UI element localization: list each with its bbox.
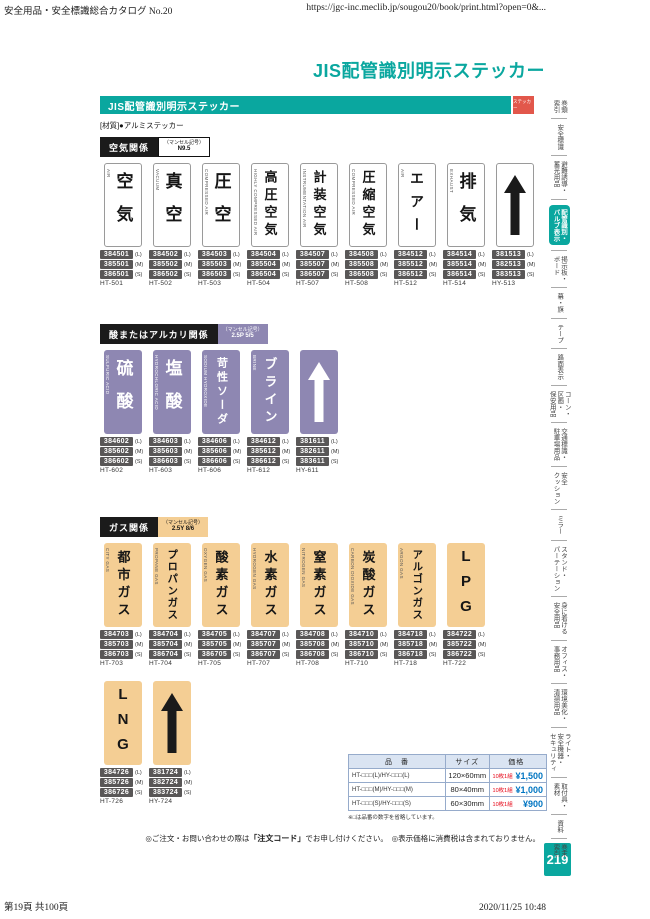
product-codes: 381611(L)382611(M)383611(S)HY-611 [296, 437, 342, 474]
pipe-sticker: HYDROGEN GAS水素ガス [251, 543, 289, 627]
sticker-main-label: 圧空 [213, 172, 230, 238]
size-label: (S) [135, 790, 142, 796]
munsell-value: 2.5Y 8/6 [163, 526, 203, 534]
product-column: AIR空気384501(L)385501(M)386501(S)HT-501 [100, 163, 146, 287]
model-number: HT-504 [247, 280, 293, 287]
size-label: (M) [184, 780, 192, 786]
sticker-english-label: SULFURIC ACID [105, 355, 110, 394]
size-label: (M) [429, 262, 437, 268]
size-cell: 120×60mm [446, 769, 490, 782]
order-code-badge: 386503 [198, 270, 231, 279]
product-codes: 384722(L)385722(M)386722(S)HT-722 [443, 630, 489, 667]
sticker-main-label: 真空 [164, 172, 181, 238]
model-number: HT-512 [394, 280, 440, 287]
size-label: (L) [233, 252, 240, 258]
size-label: (S) [380, 272, 387, 278]
order-code-line: 386502(S) [149, 270, 195, 279]
pipe-sticker: OXYGEN GAS酸素ガス [202, 543, 240, 627]
order-code-line: 386501(S) [100, 270, 146, 279]
product-column: AIRエアー384512(L)385512(M)386512(S)HT-512 [394, 163, 440, 287]
print-footer-datetime: 2020/11/25 10:48 [479, 903, 546, 913]
size-label: (M) [135, 449, 143, 455]
size-label: (L) [478, 252, 485, 258]
price-table-row: HT-□□□(M)/HY-□□□(M)80×40mm10枚1組¥1,000 [349, 783, 546, 797]
model-number: HT-703 [100, 660, 146, 667]
sticker-english-label: HYDROGEN GAS [252, 548, 257, 590]
order-code-badge: 385707 [247, 640, 280, 649]
sticker-main-label: 圧縮空気 [362, 170, 375, 240]
pipe-sticker: AIR空気 [104, 163, 142, 247]
order-code-line: 386512(S) [394, 270, 440, 279]
product-codes: 384507(L)385507(M)386507(S)HT-507 [296, 250, 342, 287]
sidebar-tab: 安全 クッション [552, 472, 567, 505]
product-column: NITROGEN GAS窒素ガス384708(L)385708(M)386708… [296, 543, 342, 667]
sticker-main-label: 窒素ガス [313, 550, 326, 620]
sticker-category-tag: ステッカー [513, 96, 534, 114]
tab-divider [551, 727, 567, 728]
size-label: (M) [233, 642, 241, 648]
order-code-badge: 386718 [394, 650, 427, 659]
order-code-badge: 384508 [345, 250, 378, 259]
sidebar-tab: ミラー [555, 515, 563, 535]
order-code-badge: 384707 [247, 630, 280, 639]
product-column: INSTRUMENTATION AIR計装空気384507(L)385507(M… [296, 163, 342, 287]
size-label: (S) [380, 652, 387, 658]
order-code-line: 386704(S) [149, 650, 195, 659]
order-code-badge: 382611 [296, 447, 329, 456]
order-code-badge: 385704 [149, 640, 182, 649]
sticker-main-label: 都市ガス [117, 550, 130, 620]
arrow-sticker [496, 163, 534, 247]
sticker-english-label: AIR [106, 169, 111, 178]
pack-unit: 10枚1組 [493, 772, 513, 780]
sticker-english-label: NITROGEN GAS [301, 548, 306, 587]
size-label: (S) [282, 459, 289, 465]
order-code-line: 384602(L) [100, 437, 146, 446]
tab-divider [551, 838, 567, 839]
size-label: (M) [527, 262, 535, 268]
order-code-badge: 385705 [198, 640, 231, 649]
model-number: HT-503 [198, 280, 244, 287]
sidebar-tab: 避難誘導・ 蓄光用品 [552, 161, 567, 194]
order-code-line: 384718(L) [394, 630, 440, 639]
sticker-main-label: 酸素ガス [215, 550, 228, 620]
product-codes: 384512(L)385512(M)386512(S)HT-512 [394, 250, 440, 287]
order-code-badge: 384704 [149, 630, 182, 639]
sticker-main-label: アルゴンガス [412, 549, 423, 621]
size-label: (L) [135, 770, 142, 776]
size-label: (L) [184, 439, 191, 445]
size-label: (M) [282, 262, 290, 268]
sticker-main-label: 硫酸 [115, 359, 132, 425]
order-code-badge: 381611 [296, 437, 329, 446]
product-column: LPG384722(L)385722(M)386722(S)HT-722 [443, 543, 489, 667]
product-column: HYDROGEN GAS水素ガス384707(L)385707(M)386707… [247, 543, 293, 667]
price-table-header-cell: 価格 [490, 755, 546, 768]
section-header: ガス関係（マンセル記号）2.5Y 8/6 [100, 517, 545, 537]
sticker-main-label: 苛性ソーダ [216, 357, 227, 427]
order-code-line: 381611(L) [296, 437, 342, 446]
order-code-line: 384502(L) [149, 250, 195, 259]
order-code-line: 385707(M) [247, 640, 293, 649]
order-code-badge: 384507 [296, 250, 329, 259]
tab-divider [551, 318, 567, 319]
product-codes: 384612(L)385612(M)386612(S)HT-612 [247, 437, 293, 474]
price-value: ¥900 [523, 799, 543, 809]
size-label: (L) [233, 439, 240, 445]
model-number: HY-611 [296, 467, 342, 474]
order-code-line: 383611(S) [296, 457, 342, 466]
order-code-line: 381513(L) [492, 250, 538, 259]
size-label: (S) [135, 652, 142, 658]
sticker-main-label: 塩酸 [164, 359, 181, 425]
price-table: 品 番サイズ価格HT-□□□(L)/HY-□□□(L)120×60mm10枚1組… [348, 754, 547, 821]
sticker-main-label: 空気 [115, 172, 132, 238]
size-label: (S) [233, 459, 240, 465]
price-table-header-row: 品 番サイズ価格 [349, 755, 546, 769]
sidebar-tab: 巻末 索引 [552, 844, 567, 857]
order-code-badge: 384705 [198, 630, 231, 639]
product-column: PROPANE GASプロパンガス384704(L)385704(M)38670… [149, 543, 195, 667]
order-code-line: 385606(M) [198, 447, 244, 456]
size-label: (M) [184, 449, 192, 455]
order-code-line: 384503(L) [198, 250, 244, 259]
size-cell: 60×30mm [446, 797, 490, 810]
order-code-badge: 385602 [100, 447, 133, 456]
tab-divider [551, 540, 567, 541]
product-codes: 384502(L)385502(M)386502(S)HT-502 [149, 250, 195, 287]
size-label: (L) [527, 252, 534, 258]
order-code-badge: 384708 [296, 630, 329, 639]
product-codes: 384501(L)385501(M)386501(S)HT-501 [100, 250, 146, 287]
order-code-badge: 383724 [149, 788, 182, 797]
sticker-row: CITY GAS都市ガス384703(L)385703(M)386703(S)H… [100, 543, 545, 667]
order-code-badge: 385603 [149, 447, 182, 456]
order-code-line: 384603(L) [149, 437, 195, 446]
size-label: (L) [380, 632, 387, 638]
model-number: HT-514 [443, 280, 489, 287]
size-label: (L) [478, 632, 485, 638]
order-code-line: 384612(L) [247, 437, 293, 446]
sticker-english-label: SODIUM HYDROXIDE [203, 355, 208, 407]
product-column: HYDROCHLORIC ACID塩酸384603(L)385603(M)386… [149, 350, 195, 474]
product-codes: 384710(L)385710(M)386710(S)HT-710 [345, 630, 391, 667]
sticker-english-label: ARGON GAS [399, 548, 404, 579]
order-code-line: 385710(M) [345, 640, 391, 649]
order-code-line: 385501(M) [100, 260, 146, 269]
price-cell: 10枚1組¥900 [490, 797, 546, 810]
order-code-badge: 386704 [149, 650, 182, 659]
model-number: HT-707 [247, 660, 293, 667]
order-code-badge: 386502 [149, 270, 182, 279]
product-column: 381513(L)382513(M)383513(S)HY-513 [492, 163, 538, 287]
pipe-sticker: HIGHLY COMPRESSED AIR高圧空気 [251, 163, 289, 247]
size-label: (L) [331, 252, 338, 258]
tab-divider [551, 118, 567, 119]
pack-unit: 10枚1組 [493, 800, 513, 808]
size-label: (M) [331, 262, 339, 268]
size-label: (M) [282, 449, 290, 455]
size-label: (S) [184, 459, 191, 465]
sticker-english-label: PROPANE GAS [154, 548, 159, 585]
material-note: [材質]●アルミステッカー [100, 120, 184, 131]
order-code-badge: 384722 [443, 630, 476, 639]
product-column: 381724(L)382724(M)383724(S)HY-724 [149, 681, 195, 805]
sidebar-tab: 身に着ける 安全用品 [552, 602, 567, 635]
pipe-sticker: PROPANE GASプロパンガス [153, 543, 191, 627]
model-number: HY-724 [149, 798, 195, 805]
up-arrow-icon [306, 359, 332, 425]
order-code-line: 385705(M) [198, 640, 244, 649]
product-codes: 384602(L)385602(M)386602(S)HT-602 [100, 437, 146, 474]
order-code-badge: 386507 [296, 270, 329, 279]
sticker-english-label: BRINE [252, 355, 257, 371]
product-codes: 384503(L)385503(M)386503(S)HT-503 [198, 250, 244, 287]
order-code-badge: 385512 [394, 260, 427, 269]
price-cell: 10枚1組¥1,000 [490, 783, 546, 796]
sticker-main-label: プロパンガス [167, 549, 178, 621]
size-label: (S) [331, 272, 338, 278]
sticker-row: AIR空気384501(L)385501(M)386501(S)HT-501VA… [100, 163, 545, 287]
order-code-line: 382513(M) [492, 260, 538, 269]
size-label: (S) [282, 272, 289, 278]
sidebar-tab: 安全標識 [555, 124, 563, 150]
munsell-value: 2.5P 5/5 [223, 333, 263, 341]
order-code-badge: 386722 [443, 650, 476, 659]
size-label: (M) [135, 780, 143, 786]
product-column: COMPRESSED AIR圧空384503(L)385503(M)386503… [198, 163, 244, 287]
catalog-print-page: 安全用品・安全標識総合カタログ No.20 https://jgc-inc.me… [0, 0, 650, 919]
pipe-sticker: SULFURIC ACID硫酸 [104, 350, 142, 434]
order-code-emphasis: 「注文コード」 [249, 834, 305, 843]
size-label: (S) [429, 272, 436, 278]
order-code-line: 383513(S) [492, 270, 538, 279]
product-column: OXYGEN GAS酸素ガス384705(L)385705(M)386705(S… [198, 543, 244, 667]
product-column: BRINEブライン384612(L)385612(M)386612(S)HT-6… [247, 350, 293, 474]
order-code-badge: 385514 [443, 260, 476, 269]
model-number: HT-722 [443, 660, 489, 667]
order-code-badge: 384502 [149, 250, 182, 259]
order-code-line: 386503(S) [198, 270, 244, 279]
order-code-line: 386504(S) [247, 270, 293, 279]
order-note-text-2: でお申し付けください。 ◎表示価格に消費税は含まれておりません。 [305, 834, 540, 843]
sidebar-tab: スタンド・ パーテーション [552, 546, 567, 592]
product-codes: 384707(L)385707(M)386707(S)HT-707 [247, 630, 293, 667]
order-code-badge: 386726 [100, 788, 133, 797]
order-code-line: 386514(S) [443, 270, 489, 279]
category-tab-sidebar: 巻頭 索引安全標識避難誘導・ 蓄光用品配管識別・ バルブ表示掲示板・ ボード幕・… [546, 98, 572, 859]
sidebar-tab: オフィス・ 事務用品 [552, 646, 567, 679]
tab-divider [551, 155, 567, 156]
pipe-sticker: CITY GAS都市ガス [104, 543, 142, 627]
pipe-sticker: LNG [104, 681, 142, 765]
price-value: ¥1,000 [515, 785, 543, 795]
tab-divider [551, 814, 567, 815]
order-code-line: 386603(S) [149, 457, 195, 466]
sticker-main-label: LNG [116, 686, 131, 761]
order-code-badge: 384718 [394, 630, 427, 639]
section-label: 酸またはアルカリ関係 [100, 324, 218, 344]
pipe-sticker: AIRエアー [398, 163, 436, 247]
product-codes: 384508(L)385508(M)386508(S)HT-508 [345, 250, 391, 287]
size-label: (L) [135, 252, 142, 258]
product-column: CITY GAS都市ガス384703(L)385703(M)386703(S)H… [100, 543, 146, 667]
price-table-row: HT-□□□(L)/HY-□□□(L)120×60mm10枚1組¥1,500 [349, 769, 546, 783]
order-code-line: 381724(L) [149, 768, 195, 777]
order-code-line: 382724(M) [149, 778, 195, 787]
arrow-sticker [300, 350, 338, 434]
order-code-badge: 386508 [345, 270, 378, 279]
sidebar-tab: ライト・ 安全機器・ セキュリティ [548, 733, 571, 772]
order-code-badge: 384703 [100, 630, 133, 639]
product-column: SODIUM HYDROXIDE苛性ソーダ384606(L)385606(M)3… [198, 350, 244, 474]
size-label: (M) [331, 642, 339, 648]
model-number: HT-726 [100, 798, 146, 805]
sticker-english-label: HYDROCHLORIC ACID [154, 355, 159, 410]
price-table-header-cell: 品 番 [349, 755, 446, 768]
order-code-line: 386726(S) [100, 788, 146, 797]
pipe-sticker: EXHAUST排気 [447, 163, 485, 247]
product-section: 酸またはアルカリ関係（マンセル記号）2.5P 5/5SULFURIC ACID硫… [100, 324, 545, 488]
order-code-badge: 385507 [296, 260, 329, 269]
order-code-badge: 386707 [247, 650, 280, 659]
order-code-badge: 384710 [345, 630, 378, 639]
order-code-line: 386718(S) [394, 650, 440, 659]
product-column: VACUUM真空384502(L)385502(M)386502(S)HT-50… [149, 163, 195, 287]
munsell-value: N9.5 [164, 146, 204, 154]
order-code-line: 385507(M) [296, 260, 342, 269]
order-code-line: 386612(S) [247, 457, 293, 466]
product-codes: 384603(L)385603(M)386603(S)HT-603 [149, 437, 195, 474]
sticker-english-label: INSTRUMENTATION AIR [302, 169, 307, 228]
pipe-sticker: ARGON GASアルゴンガス [398, 543, 436, 627]
price-value: ¥1,500 [515, 771, 543, 781]
order-code-badge: 385708 [296, 640, 329, 649]
order-code-line: 385708(M) [296, 640, 342, 649]
product-codes: 384705(L)385705(M)386705(S)HT-705 [198, 630, 244, 667]
model-number: HT-507 [296, 280, 342, 287]
order-code-badge: 385503 [198, 260, 231, 269]
pipe-sticker: NITROGEN GAS窒素ガス [300, 543, 338, 627]
order-code-badge: 384726 [100, 768, 133, 777]
order-code-line: 386707(S) [247, 650, 293, 659]
order-code-badge: 385508 [345, 260, 378, 269]
pipe-sticker: VACUUM真空 [153, 163, 191, 247]
sticker-english-label: VACUUM [155, 169, 160, 191]
model-number: HT-501 [100, 280, 146, 287]
order-code-badge: 385606 [198, 447, 231, 456]
size-label: (M) [233, 262, 241, 268]
size-label: (L) [282, 632, 289, 638]
tab-divider [551, 777, 567, 778]
model-number: HT-718 [394, 660, 440, 667]
model-number: HT-606 [198, 467, 244, 474]
order-code-line: 385603(M) [149, 447, 195, 456]
size-label: (M) [380, 262, 388, 268]
order-code-line: 386606(S) [198, 457, 244, 466]
munsell-code-box: （マンセル記号）2.5Y 8/6 [158, 517, 208, 537]
order-code-line: 384703(L) [100, 630, 146, 639]
sidebar-tab: 配管識別・ バルブ表示 [549, 205, 570, 246]
section-header: 空気関係（マンセル記号）N9.5 [100, 137, 545, 157]
order-code-badge: 383513 [492, 270, 525, 279]
size-label: (L) [184, 632, 191, 638]
sidebar-tab: 環境美化・ 清掃用品 [552, 689, 567, 722]
model-number: HT-710 [345, 660, 391, 667]
part-number-cell: HT-□□□(S)/HY-□□□(S) [349, 797, 446, 810]
product-codes: 384504(L)385504(M)386504(S)HT-504 [247, 250, 293, 287]
size-label: (L) [184, 770, 191, 776]
order-code-badge: 386606 [198, 457, 231, 466]
section-header: 酸またはアルカリ関係（マンセル記号）2.5P 5/5 [100, 324, 545, 344]
size-label: (M) [184, 262, 192, 268]
size-label: (S) [331, 652, 338, 658]
order-code-line: 384606(L) [198, 437, 244, 446]
sticker-english-label: CITY GAS [105, 548, 110, 572]
size-label: (L) [233, 632, 240, 638]
order-code-badge: 386710 [345, 650, 378, 659]
price-table-grid: 品 番サイズ価格HT-□□□(L)/HY-□□□(L)120×60mm10枚1組… [348, 754, 547, 811]
section-banner: JIS配管識別明示ステッカー ステッカー [100, 96, 534, 114]
sidebar-tab: 幕・旗 [555, 293, 563, 313]
tab-divider [551, 348, 567, 349]
section-label: ガス関係 [100, 517, 158, 537]
order-code-badge: 386612 [247, 457, 280, 466]
size-label: (S) [478, 272, 485, 278]
order-code-line: 384508(L) [345, 250, 391, 259]
tab-divider [551, 640, 567, 641]
size-label: (M) [478, 262, 486, 268]
sticker-english-label: HIGHLY COMPRESSED AIR [253, 169, 258, 236]
sidebar-tab: テープ [555, 324, 563, 344]
order-code-line: 384710(L) [345, 630, 391, 639]
product-column: HIGHLY COMPRESSED AIR高圧空気384504(L)385504… [247, 163, 293, 287]
order-code-badge: 384512 [394, 250, 427, 259]
part-number-cell: HT-□□□(M)/HY-□□□(M) [349, 783, 446, 796]
size-label: (L) [429, 632, 436, 638]
tab-divider [551, 199, 567, 200]
size-label: (M) [184, 642, 192, 648]
sticker-main-label: ブライン [264, 357, 277, 427]
pipe-sticker: COMPRESSED AIR圧縮空気 [349, 163, 387, 247]
order-code-badge: 384503 [198, 250, 231, 259]
sticker-english-label: COMPRESSED AIR [351, 169, 356, 215]
size-label: (L) [282, 439, 289, 445]
order-code-line: 384514(L) [443, 250, 489, 259]
order-code-badge: 383611 [296, 457, 329, 466]
order-code-badge: 386504 [247, 270, 280, 279]
sticker-main-label: エアー [410, 171, 424, 240]
sidebar-tab: 交通標識・ 駐車場用品 [552, 428, 567, 461]
product-codes: 384704(L)385704(M)386704(S)HT-704 [149, 630, 195, 667]
model-number: HT-602 [100, 467, 146, 474]
order-code-line: 386708(S) [296, 650, 342, 659]
order-code-badge: 386602 [100, 457, 133, 466]
order-note: ◎ご注文・お問い合わせの際は「注文コード」でお申し付けください。 ◎表示価格に消… [100, 833, 540, 844]
order-code-line: 385602(M) [100, 447, 146, 456]
model-number: HT-705 [198, 660, 244, 667]
order-code-badge: 382724 [149, 778, 182, 787]
size-label: (S) [233, 272, 240, 278]
order-code-line: 385612(M) [247, 447, 293, 456]
size-label: (S) [282, 652, 289, 658]
product-codes: 381513(L)382513(M)383513(S)HY-513 [492, 250, 538, 287]
size-label: (M) [478, 642, 486, 648]
sticker-english-label: CARBON DIOXIDE GAS [350, 548, 355, 605]
order-code-badge: 384603 [149, 437, 182, 446]
order-code-badge: 386512 [394, 270, 427, 279]
pack-unit: 10枚1組 [493, 786, 513, 794]
